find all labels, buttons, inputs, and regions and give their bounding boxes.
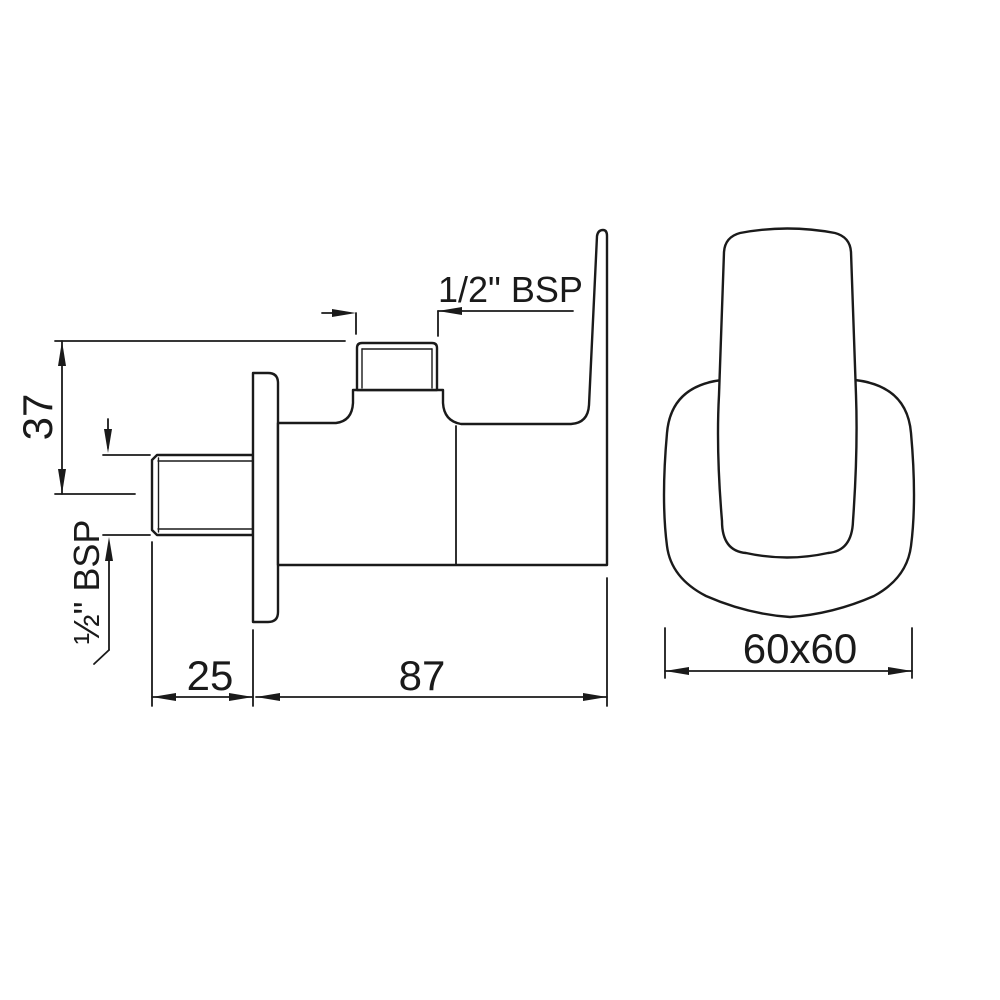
drawing-page: 37 1/2" BSP ½" BSP 25 — [0, 0, 1000, 1000]
dim-60x60-arrow-left — [665, 667, 689, 675]
front-lever-handle — [718, 229, 857, 558]
dim-60x60-label: 60x60 — [743, 625, 857, 672]
dim-25-arrow-left — [152, 693, 176, 701]
dim-37-arrow-down — [58, 469, 66, 494]
dim-60x60-arrow-right — [888, 667, 912, 675]
dim-87-arrow-left — [256, 693, 280, 701]
dim-37-arrow-up — [58, 341, 66, 366]
dim-top-thread-arrow-left — [332, 309, 356, 317]
dim-37-label: 37 — [14, 394, 61, 441]
dim-25-label: 25 — [187, 652, 234, 699]
side-outlet-nipple — [357, 343, 437, 390]
dim-top-thread-label: 1/2" BSP — [438, 269, 583, 310]
dim-87-arrow-right — [583, 693, 607, 701]
dim-inlet-leader-tail — [94, 650, 109, 664]
side-wall-flange — [253, 373, 278, 622]
technical-drawing-canvas: 37 1/2" BSP ½" BSP 25 — [0, 0, 1000, 1000]
dim-87-label: 87 — [399, 652, 446, 699]
dim-inlet-arrow-down — [104, 429, 112, 453]
dim-inlet-thread-label: ½" BSP — [66, 520, 107, 645]
side-inlet-nipple — [152, 455, 253, 535]
front-view — [664, 229, 914, 618]
